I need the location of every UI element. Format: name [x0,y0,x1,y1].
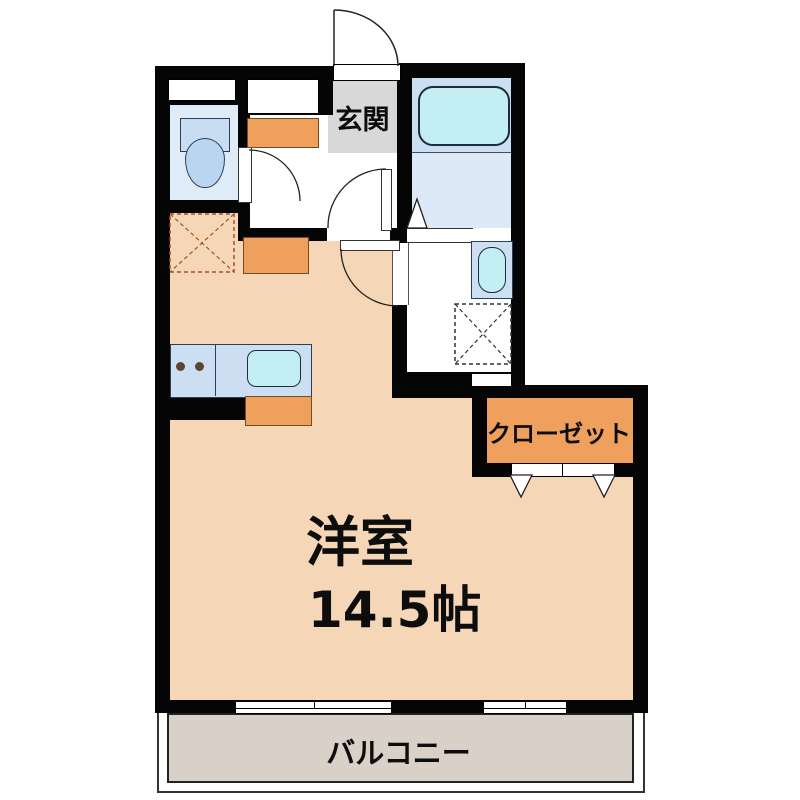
closet-folding-door-icon-left [507,474,537,500]
washing-machine-space-icon [453,302,513,366]
counter-beside-fridge [243,237,309,274]
window-above-toilet [168,79,236,101]
washbasin-bowl [478,247,506,293]
bathroom-folding-door-icon [404,196,432,231]
stove-burner-left [176,362,185,371]
balcony-label: バルコニー [167,730,630,772]
stove-burner-right [195,362,204,371]
wall-closet-bottom-left [472,463,511,477]
closet-folding-door-icon-right [590,474,620,500]
washroom-wall-notch [472,374,511,386]
washroom-door-arc [333,243,405,311]
storage-above-hallway [247,79,319,114]
sliding-window-left [235,701,392,714]
floor-plan: 玄関 クローゼット 洋室 14.5帖 バルコニー [0,0,800,800]
kitchen-counter-divider [215,344,216,396]
closet-label: クローゼット [483,414,635,449]
bathtub [418,86,510,146]
toilet-door-arc [245,143,307,205]
main-room-label: 洋室 [306,498,414,577]
wall-left [155,66,170,712]
genkan-label: 玄関 [328,98,397,137]
cabinet-below-kitchen [245,396,312,426]
wall-bottom [155,700,648,713]
wall-top-bathroom [399,63,525,78]
window-tick [525,702,526,708]
window-tick [314,702,315,708]
wall-kitchen-stub [170,396,245,420]
main-room-size-label: 14.5帖 [308,570,481,642]
hallway-door-arc [320,163,395,233]
wall-closet-top [511,385,648,398]
kitchen-sink [247,350,301,387]
wall-right-lower [633,385,648,712]
wall-right-upper [511,63,525,393]
entrance-door-arc [300,5,410,80]
refrigerator-space-icon [168,212,236,274]
sliding-window-right [483,701,567,714]
